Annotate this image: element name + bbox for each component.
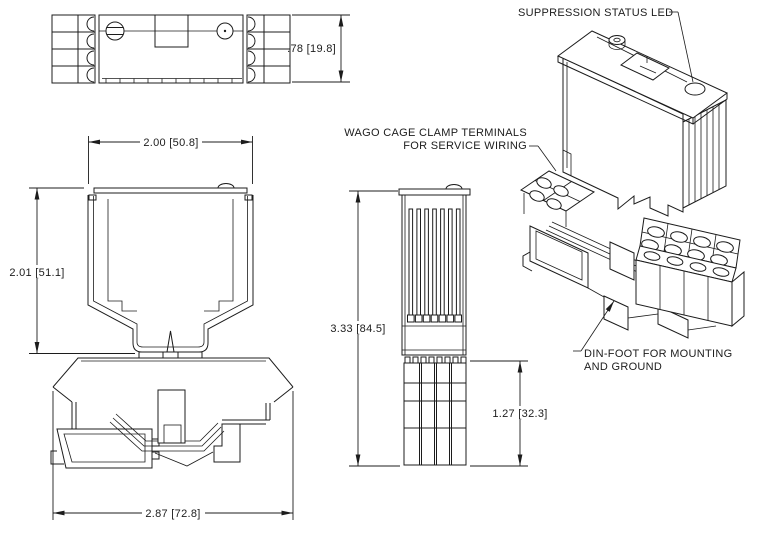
side-led-dome: [446, 185, 462, 190]
iso-terminal-block: [636, 218, 744, 326]
din-callout-line1: DIN-FOOT FOR MOUNTING: [584, 348, 732, 360]
suppression-status-led-icon: [685, 83, 705, 95]
drawing-canvas: .78 [19.8] 2.00 [50.8] 2.01 [51.1]: [0, 0, 771, 534]
dim-terminal-height: 1.27 [32.3]: [470, 361, 549, 466]
iso-rail-tab: [604, 296, 628, 330]
iso-screw-icon: [609, 36, 625, 45]
annotation-wago-terminals: WAGO CAGE CLAMP TERMINALS FOR SERVICE WI…: [344, 127, 556, 171]
iso-base-door: [610, 242, 634, 280]
isometric-view: [521, 31, 744, 338]
dim-housing-height: 2.01 [51.1]: [8, 188, 135, 354]
dim-label-width: 2.00 [50.8]: [143, 137, 198, 149]
top-view: [52, 15, 290, 83]
dim-label-height: 2.01 [51.1]: [9, 267, 64, 279]
wago-callout-line1: WAGO CAGE CLAMP TERMINALS: [344, 127, 527, 139]
base-roof: [53, 358, 293, 387]
dim-label-base-width: 2.87 [72.8]: [145, 508, 200, 520]
terminal-ticks: [405, 357, 466, 363]
din-callout-line2: AND GROUND: [584, 361, 662, 373]
dim-top-depth: .78 [19.8]: [287, 15, 350, 82]
front-led-dome: [218, 184, 234, 189]
technical-drawing: .78 [19.8] 2.00 [50.8] 2.01 [51.1]: [0, 0, 771, 534]
front-view-din-base: [51, 358, 293, 468]
wago-callout-line2: FOR SERVICE WIRING: [403, 140, 527, 152]
top-view-fin-ticks: [106, 79, 232, 84]
dim-label-terminal-height: 1.27 [32.3]: [492, 408, 547, 420]
front-view: 2.00 [50.8]: [88, 135, 253, 358]
dim-overall-height: 3.33 [84.5]: [329, 191, 400, 466]
dim-label-top-depth: .78 [19.8]: [287, 43, 336, 55]
side-view: [399, 185, 470, 466]
housing-outline: [88, 195, 253, 352]
vent-slots: [408, 209, 462, 322]
dim-label-overall-height: 3.33 [84.5]: [330, 323, 385, 335]
screw-icon: [106, 22, 124, 40]
led-callout-label: SUPPRESSION STATUS LED: [518, 7, 673, 19]
iso-terminal-end-face: [732, 272, 744, 326]
